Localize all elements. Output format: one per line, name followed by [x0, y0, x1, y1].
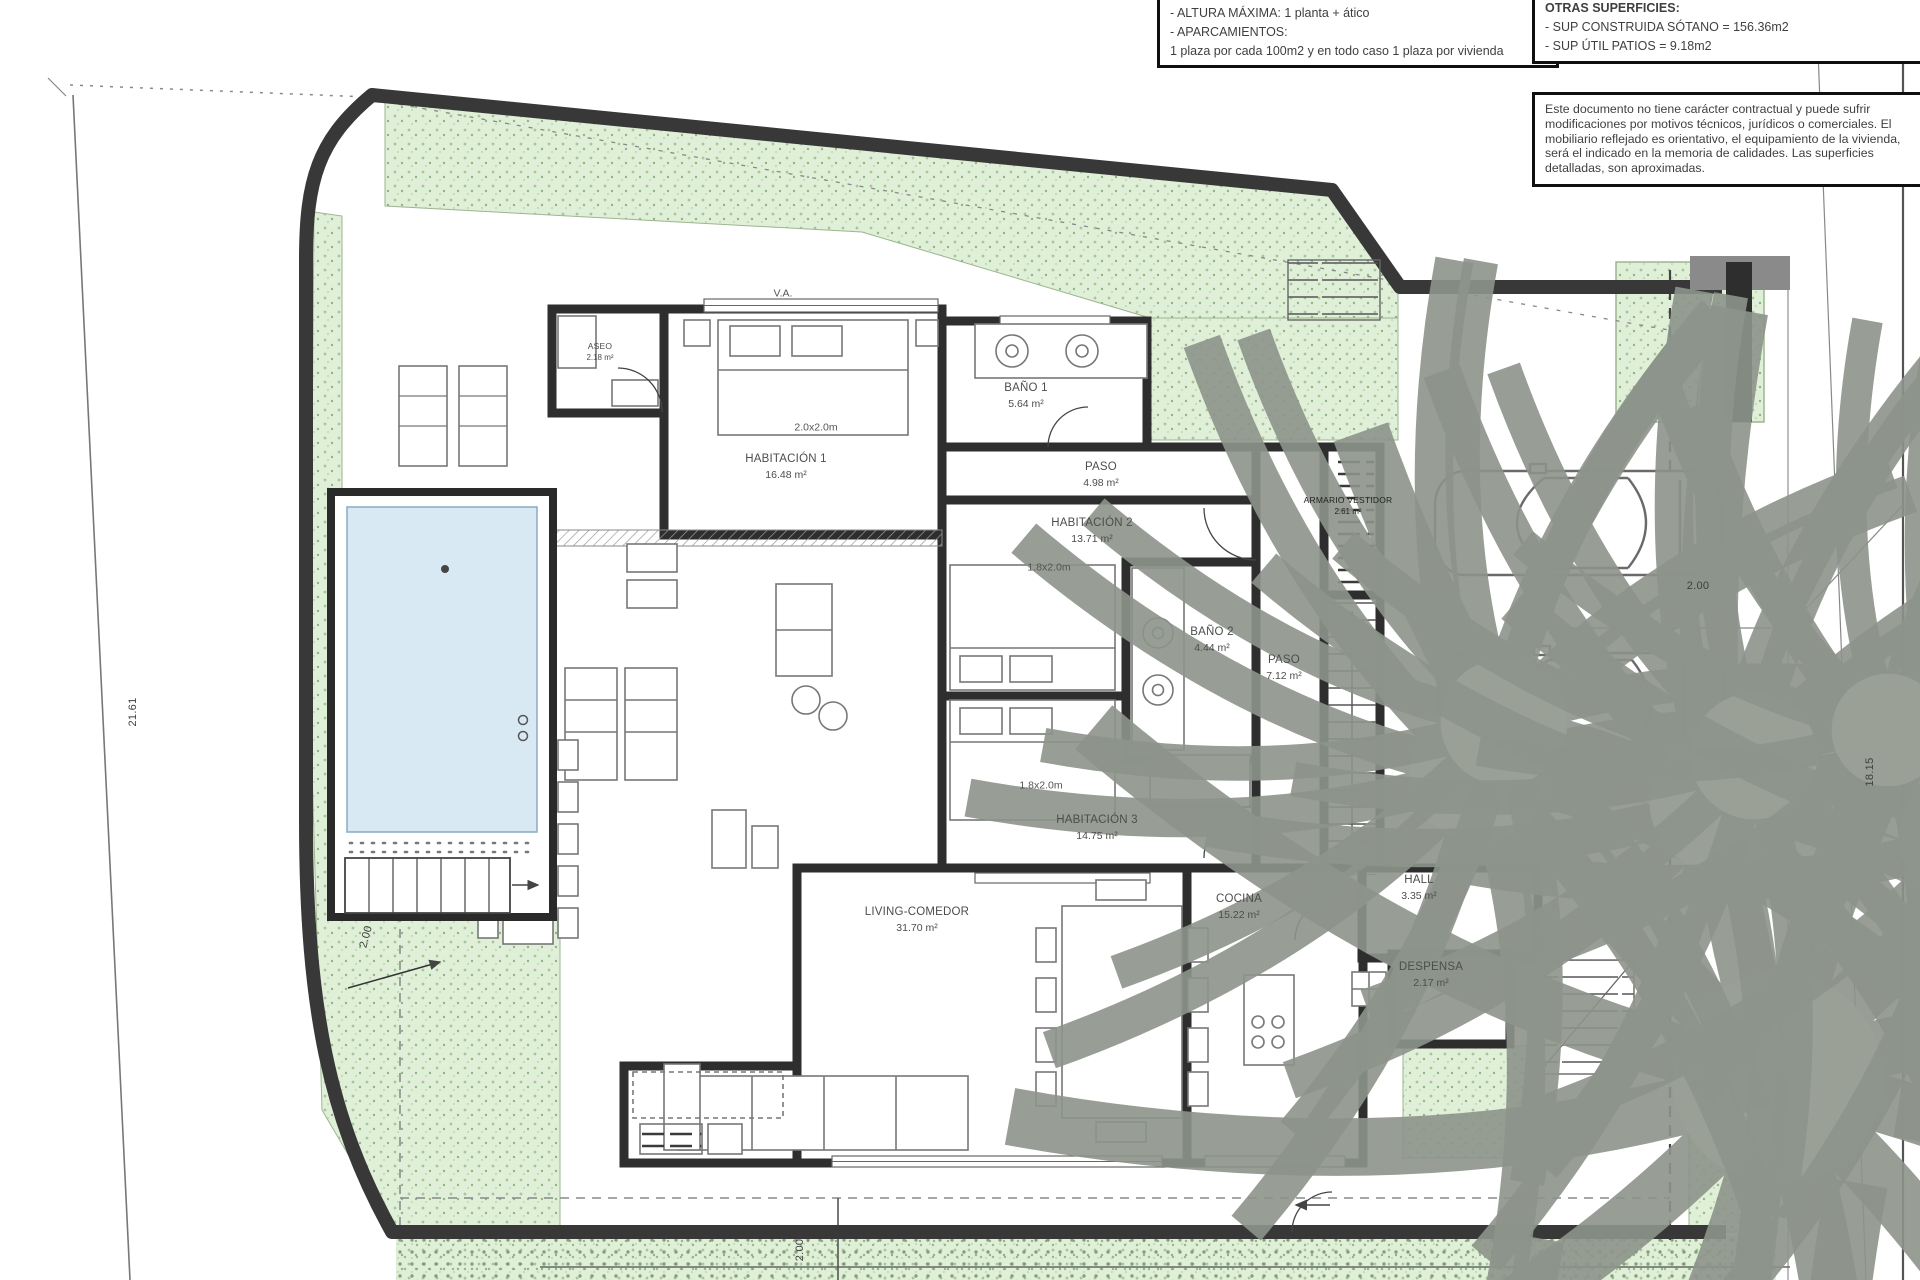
- room-label-banio-1: BAÑO 15.64 m²: [1004, 381, 1047, 412]
- sun-lounger: [399, 366, 447, 466]
- room-label-living: LIVING-COMEDOR31.70 m²: [865, 905, 969, 936]
- room-label-paso-2: PASO7.12 m²: [1266, 653, 1302, 684]
- appliance: [640, 1124, 702, 1154]
- surfaces-line: - SUP CONSTRUIDA SÓTANO = 156.36m2: [1545, 20, 1917, 34]
- ventilation-label: V.A.: [774, 287, 793, 300]
- bed-size-label: 2.0x2.0m: [794, 421, 837, 434]
- room-label-armario: ARMARIO VESTIDOR2.61 m²: [1304, 495, 1393, 517]
- dimension-plot-left: 21.61: [127, 697, 141, 726]
- bed-size-label: 1.8x2.0m: [1019, 779, 1062, 792]
- surfaces-box: OTRAS SUPERFICIES: - SUP CONSTRUIDA SÓTA…: [1532, 0, 1920, 64]
- kitchen-island: [1244, 975, 1294, 1065]
- room-label-cocina: COCINA15.22 m²: [1216, 892, 1262, 923]
- regulations-line: 1 plaza por cada 100m2 y en todo caso 1 …: [1170, 44, 1548, 58]
- room-label-paso-1: PASO4.98 m²: [1083, 460, 1119, 491]
- surfaces-title: OTRAS SUPERFICIES:: [1545, 1, 1917, 15]
- regulations-line: - APARCAMIENTOS:: [1170, 25, 1548, 39]
- pool-water: [347, 507, 537, 832]
- dimension-parking: 2.00: [1687, 580, 1710, 594]
- room-label-aseo: ASEO2.18 m²: [586, 341, 613, 363]
- disclaimer-box: Este documento no tiene carácter contrac…: [1532, 92, 1920, 187]
- regulations-line: - ALTURA MÁXIMA: 1 planta + ático: [1170, 6, 1548, 20]
- floor-plan-drawing: [0, 0, 1920, 1280]
- room-label-habitacion-1: HABITACIÓN 116.48 m²: [745, 452, 826, 483]
- lounge-chair: [625, 668, 677, 780]
- dimension-bottom: 2.00: [794, 1239, 808, 1262]
- sun-lounger: [459, 366, 507, 466]
- dimension-plot-right: 18.15: [1864, 757, 1878, 786]
- room-label-habitacion-2: HABITACIÓN 213.71 m²: [1051, 516, 1132, 547]
- room-label-habitacion-3: HABITACIÓN 314.75 m²: [1056, 813, 1137, 844]
- regulations-box: - ALTURA MÁXIMA: 1 planta + ático - APAR…: [1157, 0, 1559, 68]
- bed-size-label: 1.8x2.0m: [1027, 561, 1070, 574]
- room-label-hall: HALL3.35 m²: [1401, 873, 1437, 904]
- room-label-banio-2: BAÑO 24.44 m²: [1190, 625, 1233, 656]
- surfaces-line: - SUP ÚTIL PATIOS = 9.18m2: [1545, 39, 1917, 53]
- room-label-despensa: DESPENSA2.17 m²: [1399, 960, 1463, 991]
- pool-steps: [345, 858, 510, 913]
- exterior-stairs-top: [1288, 260, 1380, 320]
- radiator-band: [556, 530, 942, 546]
- swimming-pool: [331, 366, 553, 917]
